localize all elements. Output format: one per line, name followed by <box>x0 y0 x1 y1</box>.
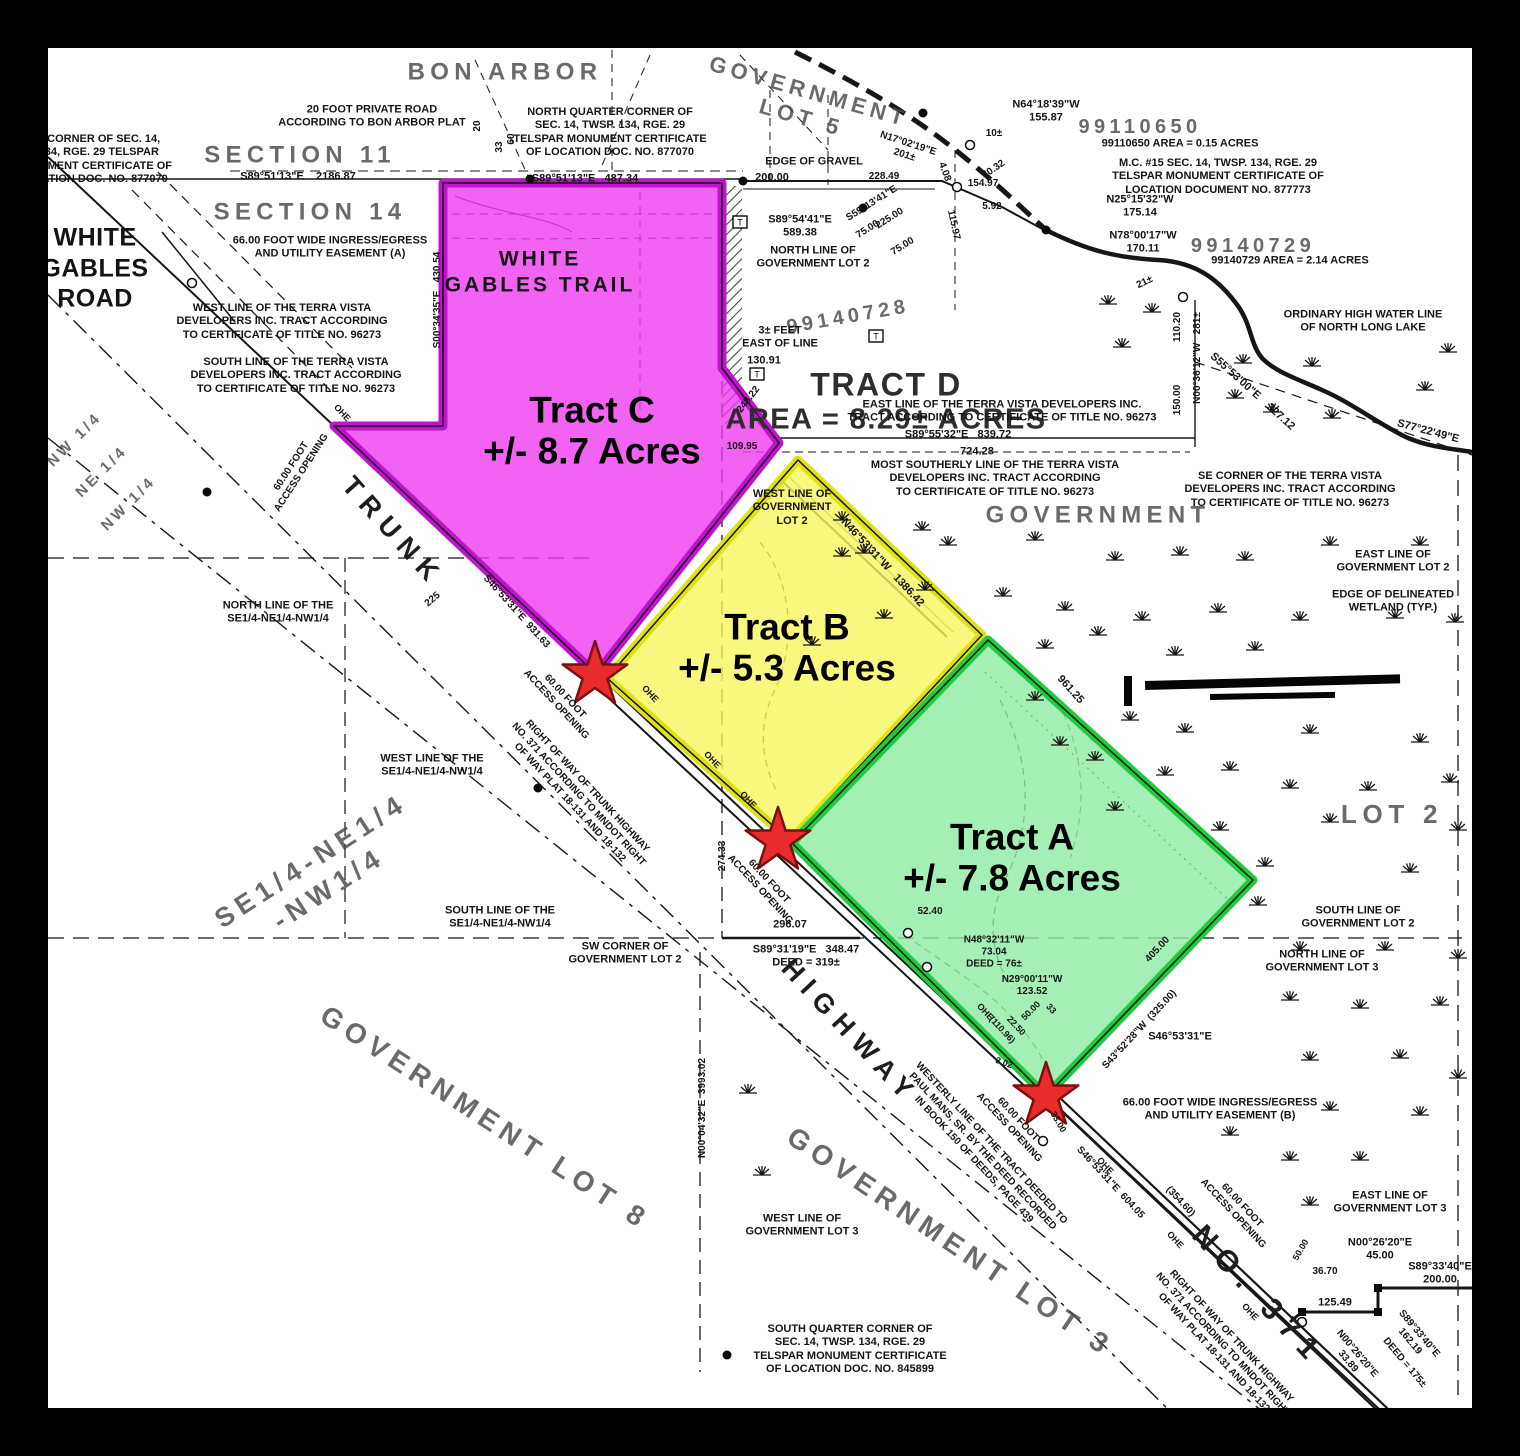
wetland-tuft-icon <box>1281 779 1299 788</box>
wetland-tuft-icon <box>1246 641 1264 650</box>
monument-square-icon <box>1374 1284 1382 1292</box>
monument-dot-icon <box>534 784 543 793</box>
utility-box-letter: T <box>754 370 760 380</box>
tract-overlays <box>334 183 1253 1096</box>
wetland-tuft-icon <box>994 587 1012 596</box>
wetland-tuft-icon <box>1211 821 1229 830</box>
wetland-tuft-icon <box>1234 354 1252 363</box>
monument-dot-icon <box>859 204 868 213</box>
wetland-tuft-icon <box>739 1084 757 1093</box>
monument-circle-icon <box>188 279 197 288</box>
monument-square-icon <box>1298 1308 1306 1316</box>
wetland-tuft-icon <box>1176 723 1194 732</box>
redaction-marks <box>1124 674 1400 706</box>
utility-box-letter: T <box>737 218 743 228</box>
wetland-tuft-icon <box>1221 1126 1239 1135</box>
wetland-tuft-icon <box>1143 303 1161 312</box>
wetland-tuft-icon <box>1446 613 1464 622</box>
wetland-tuft-icon <box>1439 343 1457 352</box>
monument-dot-icon <box>739 177 748 186</box>
wetland-tuft-icon <box>1351 1151 1369 1160</box>
wetland-tuft-icon <box>939 536 957 545</box>
wetland-tuft-icon <box>1133 611 1151 620</box>
wetland-tuft-icon <box>1036 639 1054 648</box>
monument-circle-icon <box>1179 293 1188 302</box>
wetland-tuft-icon <box>1226 389 1244 398</box>
wetland-tuft-icon <box>1221 761 1239 770</box>
redaction-mark <box>1124 676 1132 706</box>
redaction-mark <box>1145 674 1400 690</box>
monument-circle-icon <box>1298 1318 1307 1327</box>
wetland-tuft-icon <box>1449 821 1467 830</box>
wetland-tuft-icon <box>1321 1101 1339 1110</box>
wetland-tuft-icon <box>1171 546 1189 555</box>
wetland-tuft-icon <box>1291 941 1309 950</box>
wetland-tuft-icon <box>1291 611 1309 620</box>
map-paper: TTT NW CORNER OF SEC. 14, T. 134, RGE. 2… <box>48 48 1472 1408</box>
wetland-tuft-icon <box>913 521 931 530</box>
wetland-tuft-icon <box>1156 766 1174 775</box>
wetland-tuft-icon <box>1236 551 1254 560</box>
wetland-tuft-icon <box>1256 857 1274 866</box>
wetland-tuft-icon <box>1106 551 1124 560</box>
wetland-tuft-icon <box>1113 338 1131 347</box>
wetland-tuft-icon <box>1431 996 1449 1005</box>
wetland-tuft-icon <box>1209 603 1227 612</box>
monument-dot-icon <box>723 1351 732 1360</box>
monument-square-icon <box>1374 1308 1382 1316</box>
wetland-tuft-icon <box>1301 724 1319 733</box>
wetland-tuft-icon <box>1281 1151 1299 1160</box>
wetland-tuft-icon <box>1303 357 1321 366</box>
wetland-tuft-icon <box>1301 1196 1319 1205</box>
monument-circle-icon <box>1039 1137 1048 1146</box>
wetland-tuft-icon <box>1026 531 1044 540</box>
monument-circle-icon <box>904 929 913 938</box>
wetland-tuft-icon <box>1411 733 1429 742</box>
wetland-tuft-icon <box>1411 536 1429 545</box>
wetland-tuft-icon <box>1411 1106 1429 1115</box>
wetland-tuft-icon <box>1359 781 1377 790</box>
wetland-tuft-icon <box>1391 1049 1409 1058</box>
wetland-tuft-icon <box>1166 646 1184 655</box>
wetland-tuft-icon <box>1121 711 1139 720</box>
wetland-tuft-icon <box>1099 295 1117 304</box>
wetland-tuft-icon <box>1386 609 1404 618</box>
wetland-tuft-icon <box>1249 896 1267 905</box>
utility-box-letter: T <box>873 332 879 342</box>
wetland-tuft-icon <box>1281 991 1299 1000</box>
redaction-mark <box>1210 692 1335 700</box>
monument-circle-icon <box>923 963 932 972</box>
wetland-tuft-icon <box>1089 626 1107 635</box>
monument-circle-icon <box>953 183 962 192</box>
wetland-tuft-icon <box>1416 381 1434 390</box>
wetland-tuft-icon <box>1263 403 1281 412</box>
wetland-tuft-icon <box>1056 601 1074 610</box>
wetland-tuft-icon <box>1401 863 1419 872</box>
wetland-tuft-icon <box>1449 949 1467 958</box>
wetland-tuft-icon <box>1301 1051 1319 1060</box>
wetland-tuft-icon <box>1323 409 1341 418</box>
wetland-tuft-icon <box>1449 1069 1467 1078</box>
wetland-tuft-icon <box>1321 813 1339 822</box>
monument-dot-icon <box>1042 226 1051 235</box>
monument-circle-icon <box>966 141 975 150</box>
plat-map-drawing: TTT <box>48 48 1472 1408</box>
wetland-tuft-icon <box>1376 941 1394 950</box>
plat-map-screenshot: TTT NW CORNER OF SEC. 14, T. 134, RGE. 2… <box>0 0 1520 1456</box>
wetland-tuft-icon <box>1321 536 1339 545</box>
wetland-tuft-icon <box>753 1166 771 1175</box>
monument-dot-icon <box>526 175 535 184</box>
wetland-tuft-icon <box>1351 999 1369 1008</box>
monument-dot-icon <box>203 488 212 497</box>
monument-dot-icon <box>919 109 928 118</box>
wetland-tuft-icon <box>1441 773 1459 782</box>
